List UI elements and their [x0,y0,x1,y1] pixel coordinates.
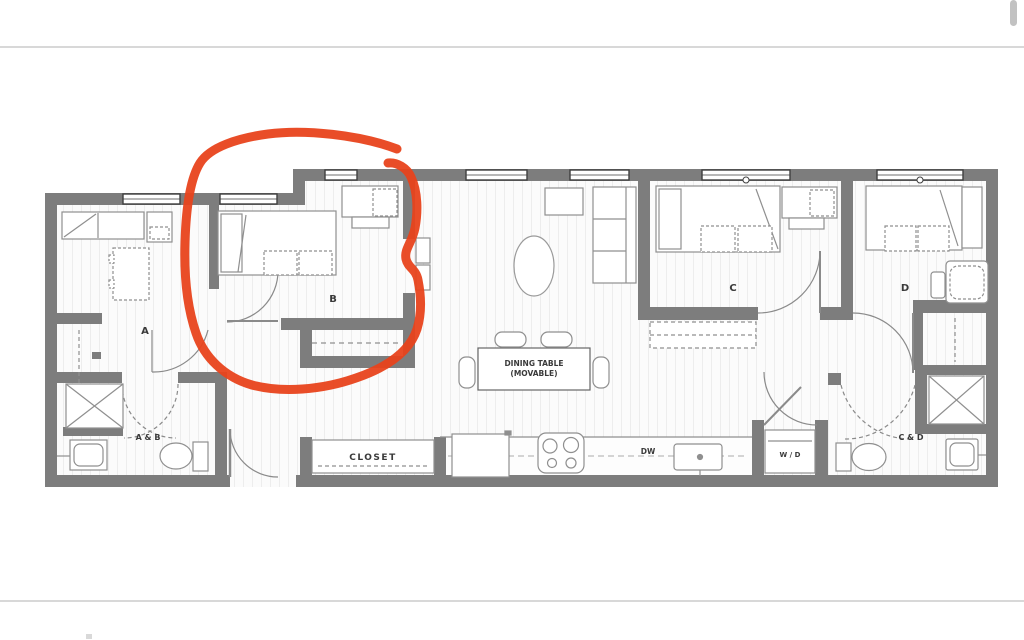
room-b-label: B [329,294,337,305]
oval-rug [514,236,554,296]
desk-chair [810,190,834,216]
closet-label: CLOSET [349,453,396,463]
window [570,170,629,180]
desk-chairs [113,248,149,300]
toilet-tank [836,443,851,471]
dining-chair [459,357,475,388]
bath-ab-label: A & B [136,433,161,442]
toilet [852,444,886,471]
washer-dryer-label: W / D [780,451,801,459]
bottom-divider [0,600,1024,602]
photo-viewer: A B [0,0,1024,640]
console [416,238,430,263]
stove [538,433,584,473]
dining-chair [593,357,609,388]
desk-chair [373,189,397,216]
dining-chair [495,332,526,347]
dishwasher-label: DW [641,447,656,456]
window [123,194,180,204]
window [325,170,357,180]
toilet [160,443,192,469]
side-table [545,188,583,215]
chair [299,251,332,275]
bed [62,212,144,239]
shelf [352,217,389,228]
dining-table-label-1: DINING TABLE [504,359,563,368]
page-artifact-dot [86,634,92,639]
sofa [593,187,636,283]
chair [701,226,735,252]
chair [885,226,916,251]
window [466,170,527,180]
pillow [659,189,681,249]
refrigerator [452,434,509,477]
room-a-label: A [141,326,149,337]
dining-chair [541,332,572,347]
room-c-label: C [729,283,736,294]
chair [918,226,949,251]
dining-table-label-2: (MOVABLE) [510,369,557,378]
chair [738,226,772,252]
chair [264,251,297,275]
window [220,194,277,204]
toilet-tank [193,442,208,471]
bath-cd-label: C & D [898,433,923,442]
side-table [931,272,945,298]
room-d-label: D [901,283,909,294]
shelf [789,218,824,229]
wardrobe [962,187,982,248]
